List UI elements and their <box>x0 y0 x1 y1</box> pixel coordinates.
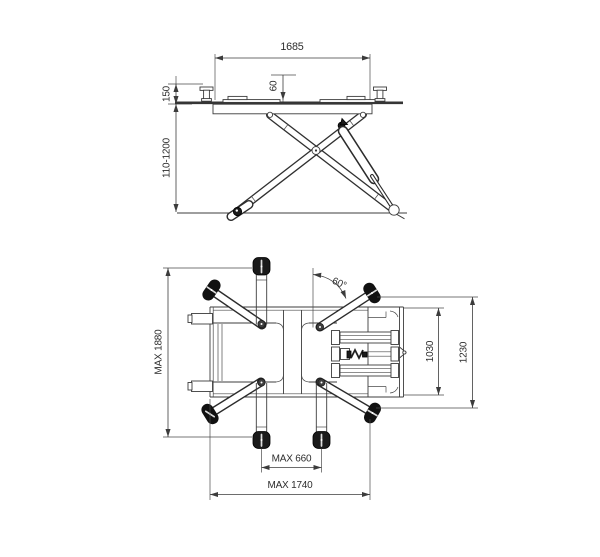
fillet <box>276 374 284 382</box>
dim-label-1685: 1685 <box>280 41 303 53</box>
plan-view: MAX 1880 60° 1030 1230 MAX 660 <box>154 258 479 501</box>
arm-lower-left <box>206 378 265 418</box>
arm-upper-right <box>316 289 376 331</box>
dim-label-60: 60 <box>269 80 280 91</box>
platform-body <box>213 104 372 114</box>
corner-gusset <box>390 387 398 393</box>
dim-label-150: 150 <box>162 85 173 102</box>
dim-label-1230: 1230 <box>459 341 470 363</box>
foot-left <box>231 205 249 217</box>
rail-bottom <box>332 364 399 378</box>
pump-block <box>347 351 351 358</box>
foot-roller <box>389 205 399 215</box>
arm-top-pivot <box>360 112 365 117</box>
side-view: 1685 60 150 110-1200 <box>162 41 408 219</box>
fillet <box>276 323 284 331</box>
corner-gusset <box>390 311 398 317</box>
drawing-page: 1685 60 150 110-1200 <box>0 0 600 557</box>
scissor-mechanism <box>231 115 405 219</box>
dim-label-max-660: MAX 660 <box>272 454 312 465</box>
foot-tick <box>397 214 405 219</box>
dim-height-stack: 150 110-1200 <box>162 76 204 212</box>
end-roller-left <box>200 87 213 101</box>
dim-platform-length: 1685 <box>215 41 370 100</box>
rubber-pad-left <box>223 96 280 102</box>
drawing-canvas: 1685 60 150 110-1200 <box>0 0 600 557</box>
mount-tab-top <box>188 314 213 325</box>
fillet <box>302 374 310 382</box>
hydraulic-cylinder <box>338 119 392 208</box>
dim-label-60deg: 60° <box>330 276 348 292</box>
dim-label-max-1880: MAX 1880 <box>154 329 165 375</box>
end-roller-right <box>374 87 387 101</box>
platform-deck <box>332 331 407 378</box>
fillet <box>302 323 310 331</box>
dim-wheel-span-inner: MAX 660 <box>262 449 322 473</box>
dim-label-max-1740: MAX 1740 <box>267 480 313 491</box>
mount-tab-bottom <box>188 381 213 392</box>
dim-wheel-span-outer: MAX 1740 <box>210 399 370 500</box>
clevis-pin <box>341 119 348 125</box>
pump-detail <box>351 350 363 358</box>
dim-label-1030: 1030 <box>425 340 436 362</box>
foot-right <box>389 205 405 219</box>
rail-middle-hydraulic <box>332 347 399 361</box>
dim-label-lift-range: 110-1200 <box>162 137 173 178</box>
rubber-pad-right <box>320 96 375 102</box>
center-notch <box>400 347 407 358</box>
dim-width-inner: 1030 <box>404 308 444 395</box>
arm-top-pivot <box>267 112 272 117</box>
valve-block <box>363 352 368 357</box>
rail-top <box>332 331 399 345</box>
platform <box>175 87 403 117</box>
